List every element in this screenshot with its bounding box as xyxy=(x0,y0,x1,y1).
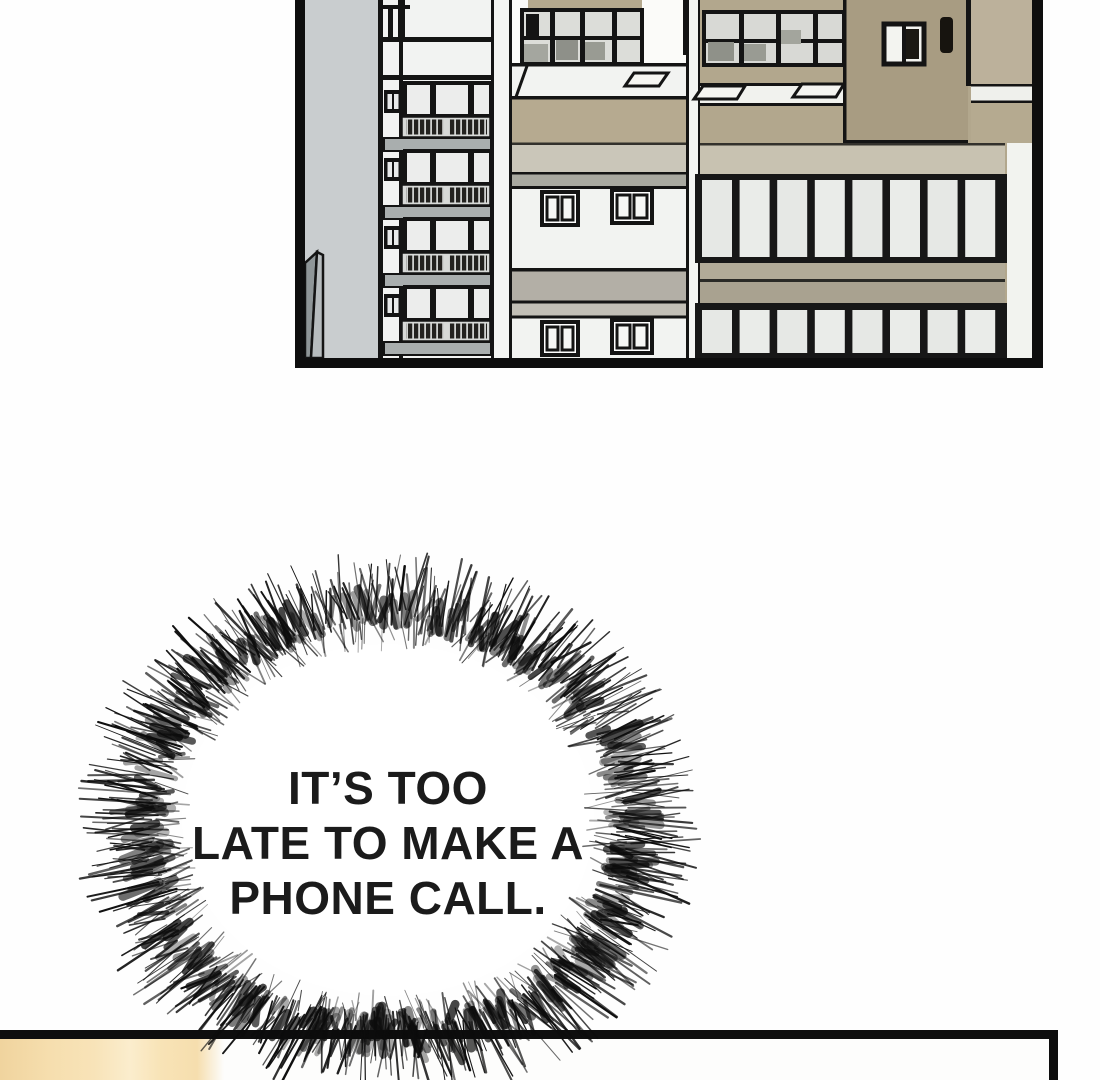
middle-building xyxy=(512,0,702,358)
bubble-line-1: IT’S TOO xyxy=(128,761,648,816)
cream-wall xyxy=(0,1039,224,1080)
bottom-panel xyxy=(0,1030,1058,1080)
dark-door-slit xyxy=(940,17,953,53)
tower-floors xyxy=(384,83,491,355)
bubble-line-2: LATE TO MAKE A xyxy=(128,816,648,871)
right-building xyxy=(694,0,1032,358)
top-panel-buildings xyxy=(295,0,1043,368)
bubble-line-3: PHONE CALL. xyxy=(128,871,648,926)
comic-page: IT’S TOO LATE TO MAKE A PHONE CALL. xyxy=(0,0,1100,1080)
apartment-tower xyxy=(378,0,512,358)
bubble-text: IT’S TOO LATE TO MAKE A PHONE CALL. xyxy=(128,761,648,926)
rooftop-box xyxy=(305,252,323,358)
